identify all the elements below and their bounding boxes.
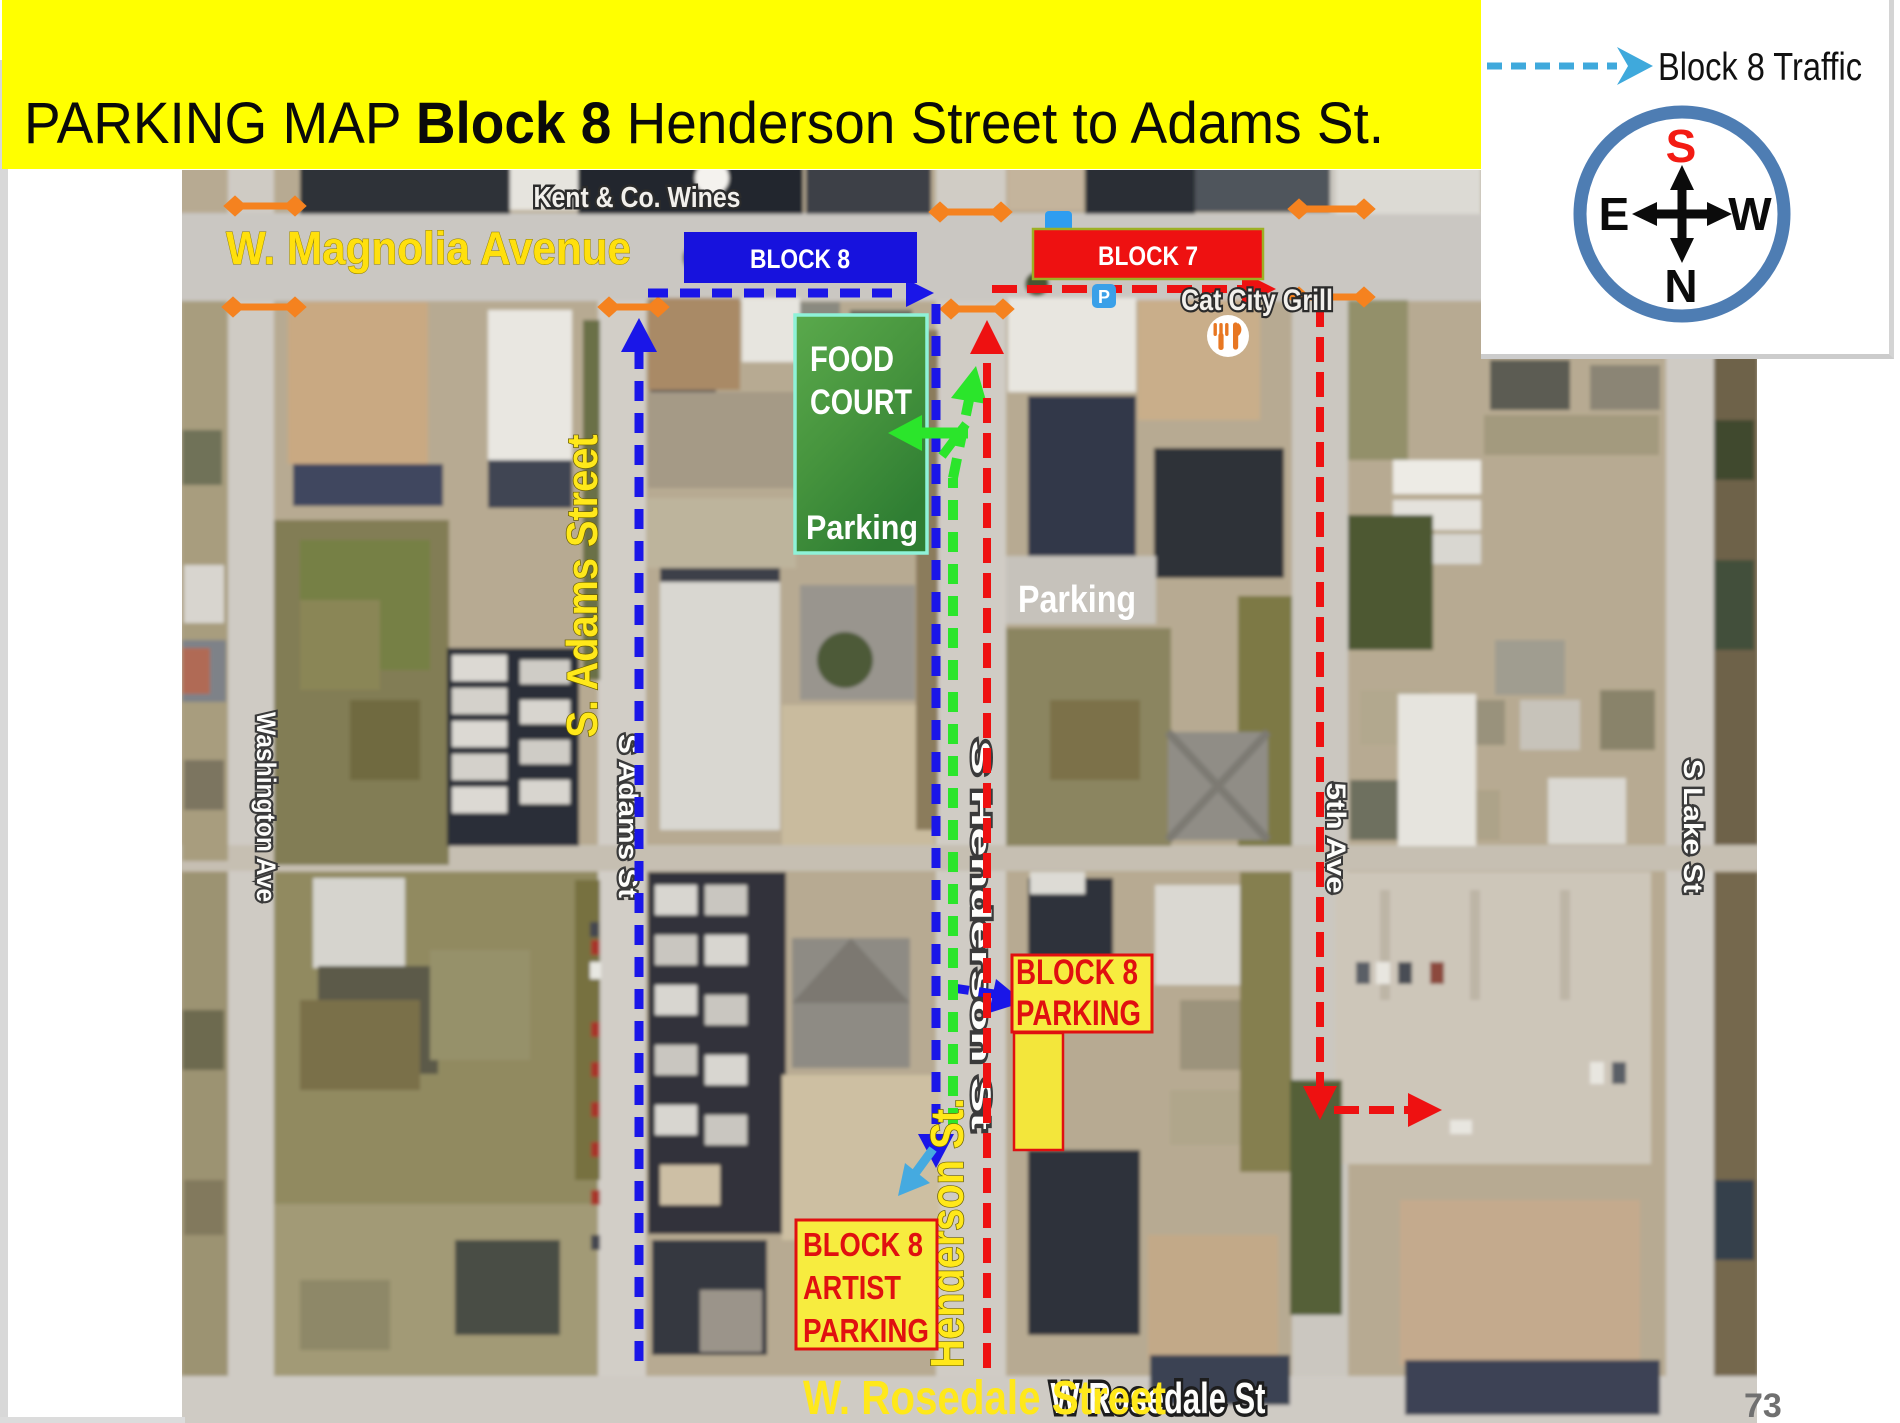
svg-text:W. Rosedale Street: W. Rosedale Street — [803, 1372, 1166, 1423]
svg-text:Kent & Co. Wines: Kent & Co. Wines — [534, 182, 741, 214]
svg-text:COURT: COURT — [810, 383, 912, 422]
svg-text:FOOD: FOOD — [810, 340, 894, 379]
svg-text:ARTIST: ARTIST — [803, 1269, 901, 1306]
svg-text:Block 8 Traffic: Block 8 Traffic — [1658, 46, 1862, 89]
svg-text:E: E — [1599, 188, 1630, 240]
svg-text:BLOCK 8: BLOCK 8 — [1016, 953, 1138, 992]
svg-text:P: P — [1098, 287, 1110, 307]
svg-text:Washington Ave: Washington Ave — [251, 712, 281, 902]
svg-text:Parking: Parking — [806, 509, 918, 547]
svg-text:5th Ave: 5th Ave — [1321, 783, 1351, 894]
svg-text:BLOCK 8: BLOCK 8 — [750, 244, 850, 274]
svg-text:73: 73 — [1744, 1387, 1782, 1423]
svg-text:W. Magnolia Avenue: W. Magnolia Avenue — [226, 222, 631, 274]
svg-text:BLOCK 7: BLOCK 7 — [1098, 241, 1198, 271]
svg-text:S. Adams Street: S. Adams Street — [558, 434, 607, 737]
svg-text:PARKING: PARKING — [803, 1312, 929, 1349]
svg-text:S Henderson St: S Henderson St — [966, 740, 996, 1130]
svg-text:S Lake St: S Lake St — [1678, 759, 1708, 893]
svg-text:W: W — [1728, 188, 1772, 240]
svg-text:PARKING MAP Block 8 Henderson: PARKING MAP Block 8 Henderson Street to … — [24, 91, 1384, 156]
svg-text:BLOCK 8: BLOCK 8 — [803, 1226, 923, 1263]
svg-text:Cat City Grill: Cat City Grill — [1181, 284, 1333, 317]
svg-text:N: N — [1664, 260, 1697, 312]
svg-text:PARKING: PARKING — [1016, 994, 1141, 1033]
svg-text:Parking: Parking — [1018, 579, 1136, 621]
svg-text:S: S — [1666, 120, 1697, 172]
